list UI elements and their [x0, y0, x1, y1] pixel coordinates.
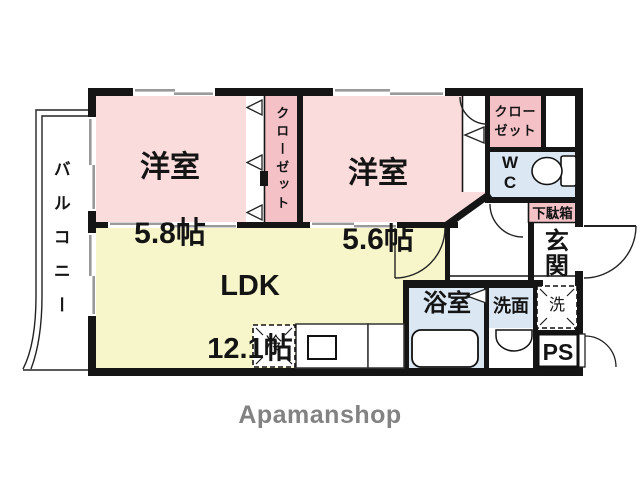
ldk-name: LDK: [165, 271, 335, 302]
apamanshop-logo: Apamanshop: [0, 401, 640, 430]
ldk-label: LDK 12.1帖: [165, 240, 335, 397]
toilet-tank-icon: [561, 156, 576, 186]
ps-door-arc: [585, 336, 616, 367]
entrance-label: 玄関: [540, 228, 566, 278]
bathtub-icon: [412, 330, 478, 367]
room2-name: 洋室: [308, 157, 448, 190]
kitchen-counter: [368, 324, 404, 368]
folding-door-triangle: [247, 100, 262, 115]
folding-door-triangle: [247, 155, 262, 170]
washroom-label: 洗面: [489, 297, 533, 317]
pipe-space-label: PS: [538, 340, 578, 365]
closet-strip-label: クローゼット: [274, 106, 288, 214]
folding-door-triangle: [247, 205, 262, 220]
room1-name: 洋室: [100, 151, 240, 184]
door-swing-arc: [490, 204, 523, 237]
washbasin-icon: [496, 330, 532, 351]
bathroom-label: 浴室: [409, 291, 485, 317]
entrance-door-arc: [584, 226, 636, 278]
shoe-cabinet-label: 下駄箱: [528, 204, 577, 223]
closet-box-label: クロー ゼット: [490, 103, 541, 141]
washer-label: 洗: [537, 297, 577, 315]
floorplan-image: バルコニー 洋室 5.8帖 洋室 5.6帖 クローゼット クロー ゼット W C…: [0, 0, 640, 480]
ldk-size: 12.1帖: [165, 334, 335, 365]
closet-door-handle: [260, 171, 268, 186]
door-swing-arc: [460, 97, 487, 124]
folding-door-triangle: [465, 127, 484, 143]
toilet-icon: [532, 158, 562, 185]
fridge-label: 冷: [253, 335, 295, 354]
wc-label: W C: [499, 153, 521, 192]
balcony-label: バルコニー: [50, 160, 69, 330]
